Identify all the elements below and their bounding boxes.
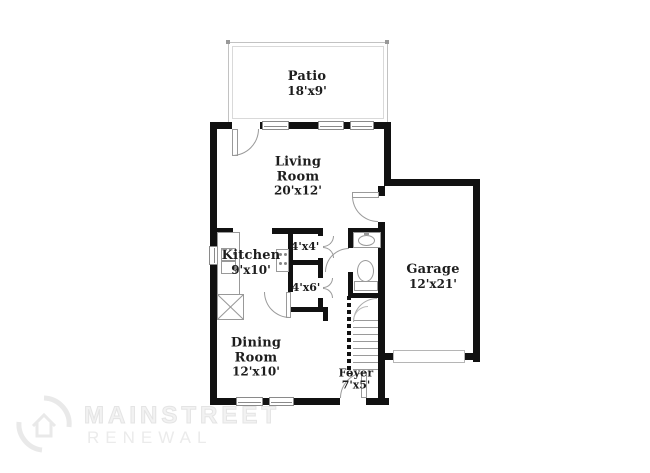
watermark-brand-line2: RENEWAL	[87, 428, 212, 448]
wall-segment	[272, 228, 323, 234]
room-dims: 9'x10'	[222, 264, 281, 277]
bathroom-sink-icon	[358, 235, 375, 246]
patio-corner-mark	[226, 40, 230, 44]
wall-segment	[473, 179, 480, 362]
room-label-patio: Patio 18'x9'	[287, 70, 327, 98]
door-opening	[378, 196, 385, 222]
room-label-garage: Garage 12'x21'	[406, 263, 459, 291]
room-label-foyer: Foyer 7'x5'	[339, 368, 374, 393]
wall-segment	[384, 179, 480, 186]
room-label-dining-room: Dining Room 12'x10'	[224, 337, 288, 380]
burner-icon	[284, 253, 287, 256]
wall-segment	[323, 307, 328, 321]
room-label-closet-4x4: 4'x4'	[291, 241, 320, 253]
room-dims: 7'x5'	[339, 380, 374, 392]
room-dims: 20'x12'	[266, 185, 330, 198]
closet-door-swing-arc	[323, 236, 334, 247]
room-dims: 12'x10'	[224, 366, 288, 379]
faucet-icon	[364, 232, 369, 235]
room-dims: 12'x21'	[406, 278, 459, 291]
garage-door-icon	[393, 350, 465, 363]
toilet-tank-icon	[354, 281, 378, 291]
wall-segment	[318, 258, 323, 278]
stairs-open-rail	[347, 296, 351, 374]
door-swing-arc	[232, 129, 259, 156]
door-swing-arc	[264, 292, 290, 318]
stairs-winder-arc	[353, 306, 368, 321]
room-label-kitchen: Kitchen 9'x10'	[222, 249, 281, 277]
closet-door-swing-arc	[323, 247, 334, 258]
closet-door-swing-arc	[323, 278, 333, 288]
room-name: Garage	[406, 263, 459, 278]
room-name: Living Room	[266, 156, 330, 185]
room-name: Dining Room	[224, 337, 288, 366]
door-opening	[340, 398, 366, 405]
door-swing-arc	[352, 196, 378, 222]
wall-segment	[288, 307, 328, 312]
wall-segment	[348, 293, 384, 298]
watermark-brand-line1: MAINSTREET	[84, 402, 280, 430]
stairs-treads	[353, 320, 378, 370]
door-opening	[232, 122, 260, 129]
toilet-bowl-icon	[357, 260, 374, 282]
wall-segment	[318, 228, 323, 236]
window	[262, 121, 289, 130]
floorplan-canvas: Patio 18'x9' Living Room 20'x12' Kitchen…	[0, 0, 650, 473]
window	[318, 121, 344, 130]
window	[350, 121, 374, 130]
patio-corner-mark	[385, 40, 389, 44]
room-dims: 4'x4'	[291, 241, 320, 253]
room-dims: 18'x9'	[287, 85, 327, 98]
closet-door-swing-arc	[323, 288, 333, 298]
pantry-cabinet-icon	[217, 294, 244, 320]
wall-segment	[384, 122, 391, 186]
burner-icon	[284, 262, 287, 265]
room-dims: 4'x6'	[292, 282, 321, 294]
room-label-living-room: Living Room 20'x12'	[266, 156, 330, 199]
room-label-closet-4x6: 4'x6'	[292, 282, 321, 294]
house-in-circular-arrows-icon	[14, 394, 74, 454]
room-name: Patio	[287, 70, 327, 85]
room-name: Kitchen	[222, 249, 281, 264]
